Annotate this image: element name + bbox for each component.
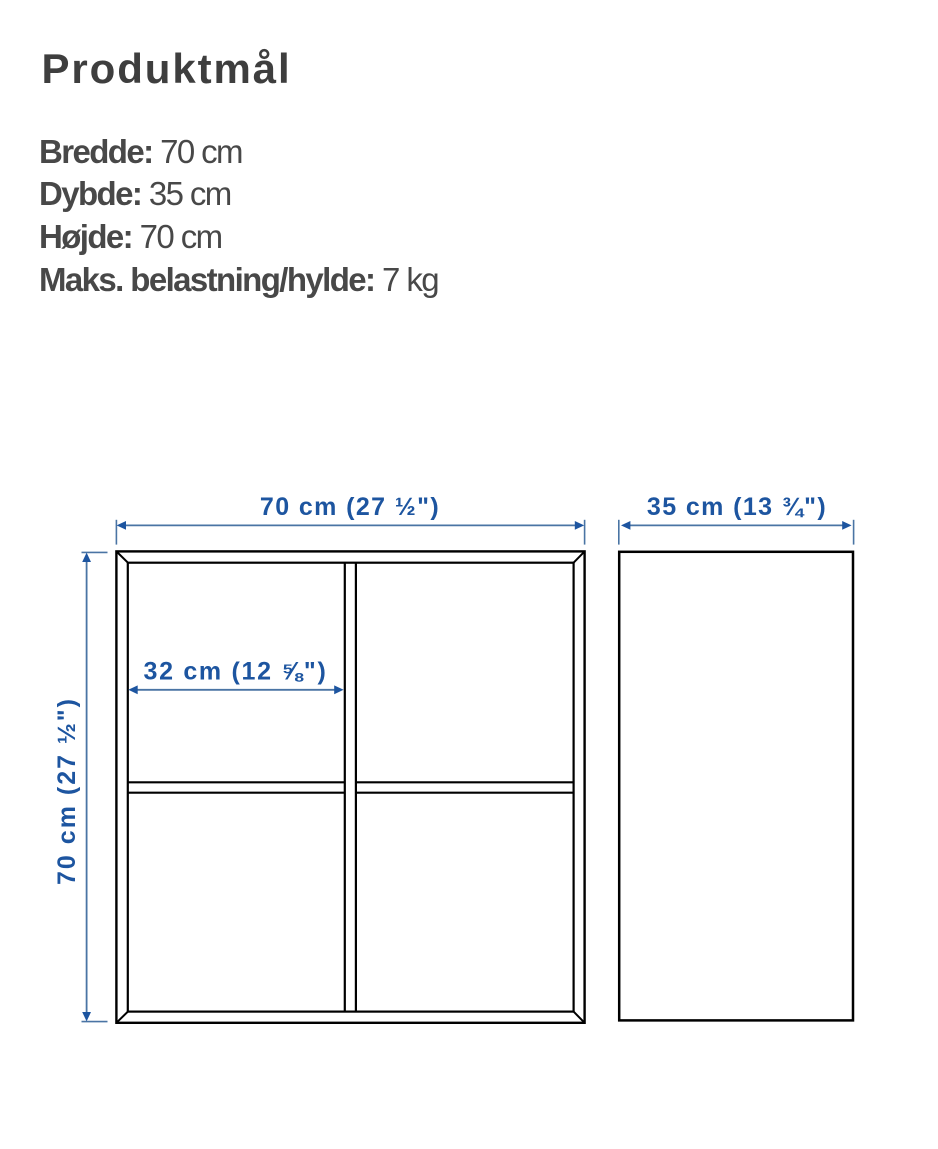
svg-text:32 cm (12 ⅝"): 32 cm (12 ⅝") bbox=[143, 658, 327, 686]
svg-text:35 cm (13 ¾"): 35 cm (13 ¾") bbox=[647, 493, 827, 521]
svg-text:70 cm (27 ½"): 70 cm (27 ½") bbox=[260, 493, 440, 521]
svg-text:70 cm (27 ½"): 70 cm (27 ½") bbox=[53, 697, 81, 885]
